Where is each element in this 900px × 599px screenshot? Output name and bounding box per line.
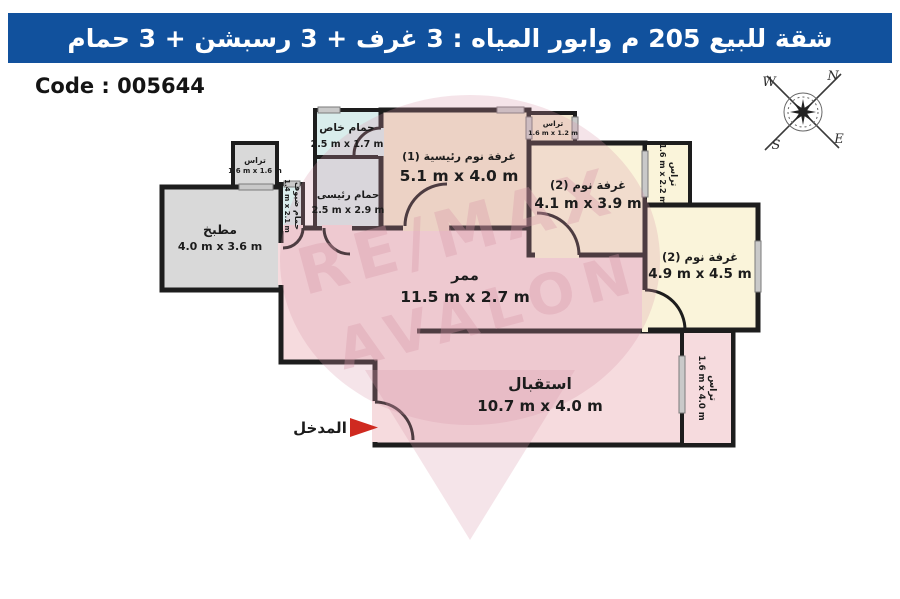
- opening-entrance: [372, 401, 378, 442]
- flyer: شقة للبيع 205 م وابور المياه : 3 غرف + 3…: [0, 0, 900, 599]
- compass-letter-n: N: [826, 69, 839, 84]
- window-terrace-2: [642, 151, 648, 197]
- svg-text:1.4 m x 2.1 m: 1.4 m x 2.1 m: [283, 179, 291, 233]
- svg-text:تراس: تراس: [707, 375, 718, 401]
- svg-text:1.6 m x 2.2 m: 1.6 m x 2.2 m: [658, 143, 667, 204]
- room-kitchen-terrace: [233, 143, 277, 187]
- svg-text:4.9 m x 4.5 m: 4.9 m x 4.5 m: [648, 266, 751, 282]
- svg-text:11.5 m x 2.7 m: 11.5 m x 2.7 m: [400, 288, 530, 306]
- svg-text:غرفة نوم رئيسية (1): غرفة نوم رئيسية (1): [402, 150, 516, 163]
- svg-text:تراس: تراس: [543, 119, 564, 128]
- room-kitchen: [162, 187, 281, 290]
- compass-letter-w: W: [762, 75, 777, 90]
- svg-text:حمام خاص: حمام خاص: [319, 122, 375, 134]
- svg-text:مطبخ: مطبخ: [203, 222, 237, 237]
- svg-text:تراس: تراس: [668, 162, 678, 186]
- svg-text:10.7 m x 4.0 m: 10.7 m x 4.0 m: [477, 397, 602, 415]
- svg-text:1.6 m x 1.2 m: 1.6 m x 1.2 m: [528, 129, 578, 137]
- svg-text:2.5 m x 2.9 m: 2.5 m x 2.9 m: [312, 205, 385, 216]
- compass-star: [790, 99, 816, 125]
- svg-text:استقبال: استقبال: [508, 375, 572, 393]
- window-private-bath: [318, 107, 340, 113]
- window-kitchen-terrace: [239, 184, 273, 190]
- svg-text:1.6 m x 1.6 m: 1.6 m x 1.6 m: [228, 167, 282, 175]
- svg-text:حمام ضيوف: حمام ضيوف: [293, 182, 302, 230]
- compass-letter-s: S: [772, 138, 781, 153]
- svg-text:تراس: تراس: [244, 156, 266, 166]
- svg-text:1.6 m x 4.0 m: 1.6 m x 4.0 m: [696, 355, 706, 420]
- svg-text:غرفة نوم (2): غرفة نوم (2): [550, 178, 626, 193]
- svg-text:حمام رئيسى: حمام رئيسى: [317, 190, 379, 201]
- svg-text:5.1 m x 4.0 m: 5.1 m x 4.0 m: [400, 167, 519, 185]
- svg-text:غرفة نوم (2): غرفة نوم (2): [662, 250, 738, 265]
- svg-text:4.1 m x 3.9 m: 4.1 m x 3.9 m: [534, 196, 641, 212]
- entrance-label: المدخل: [293, 419, 347, 437]
- room-label-master-bedroom: غرفة نوم رئيسية (1) 5.1 m x 4.0 m: [400, 150, 519, 185]
- floor-plan: RE/MAX AVALON تراس 1.6 m x 1.6 m مطبخ 4.…: [0, 0, 900, 599]
- watermark-balloon-tip: [365, 370, 575, 540]
- window-terrace-3: [679, 356, 685, 413]
- compass-rose-icon: N W S E: [762, 69, 844, 153]
- svg-text:ممر: ممر: [450, 268, 479, 284]
- svg-text:2.5 m x 1.7 m: 2.5 m x 1.7 m: [311, 139, 384, 150]
- svg-text:4.0 m x 3.6 m: 4.0 m x 3.6 m: [178, 240, 262, 253]
- compass-letter-e: E: [833, 132, 844, 147]
- entrance-marker: المدخل: [293, 418, 378, 437]
- window-bedroom-3: [755, 241, 761, 292]
- room-label-bedroom-3: غرفة نوم (2) 4.9 m x 4.5 m: [648, 250, 751, 282]
